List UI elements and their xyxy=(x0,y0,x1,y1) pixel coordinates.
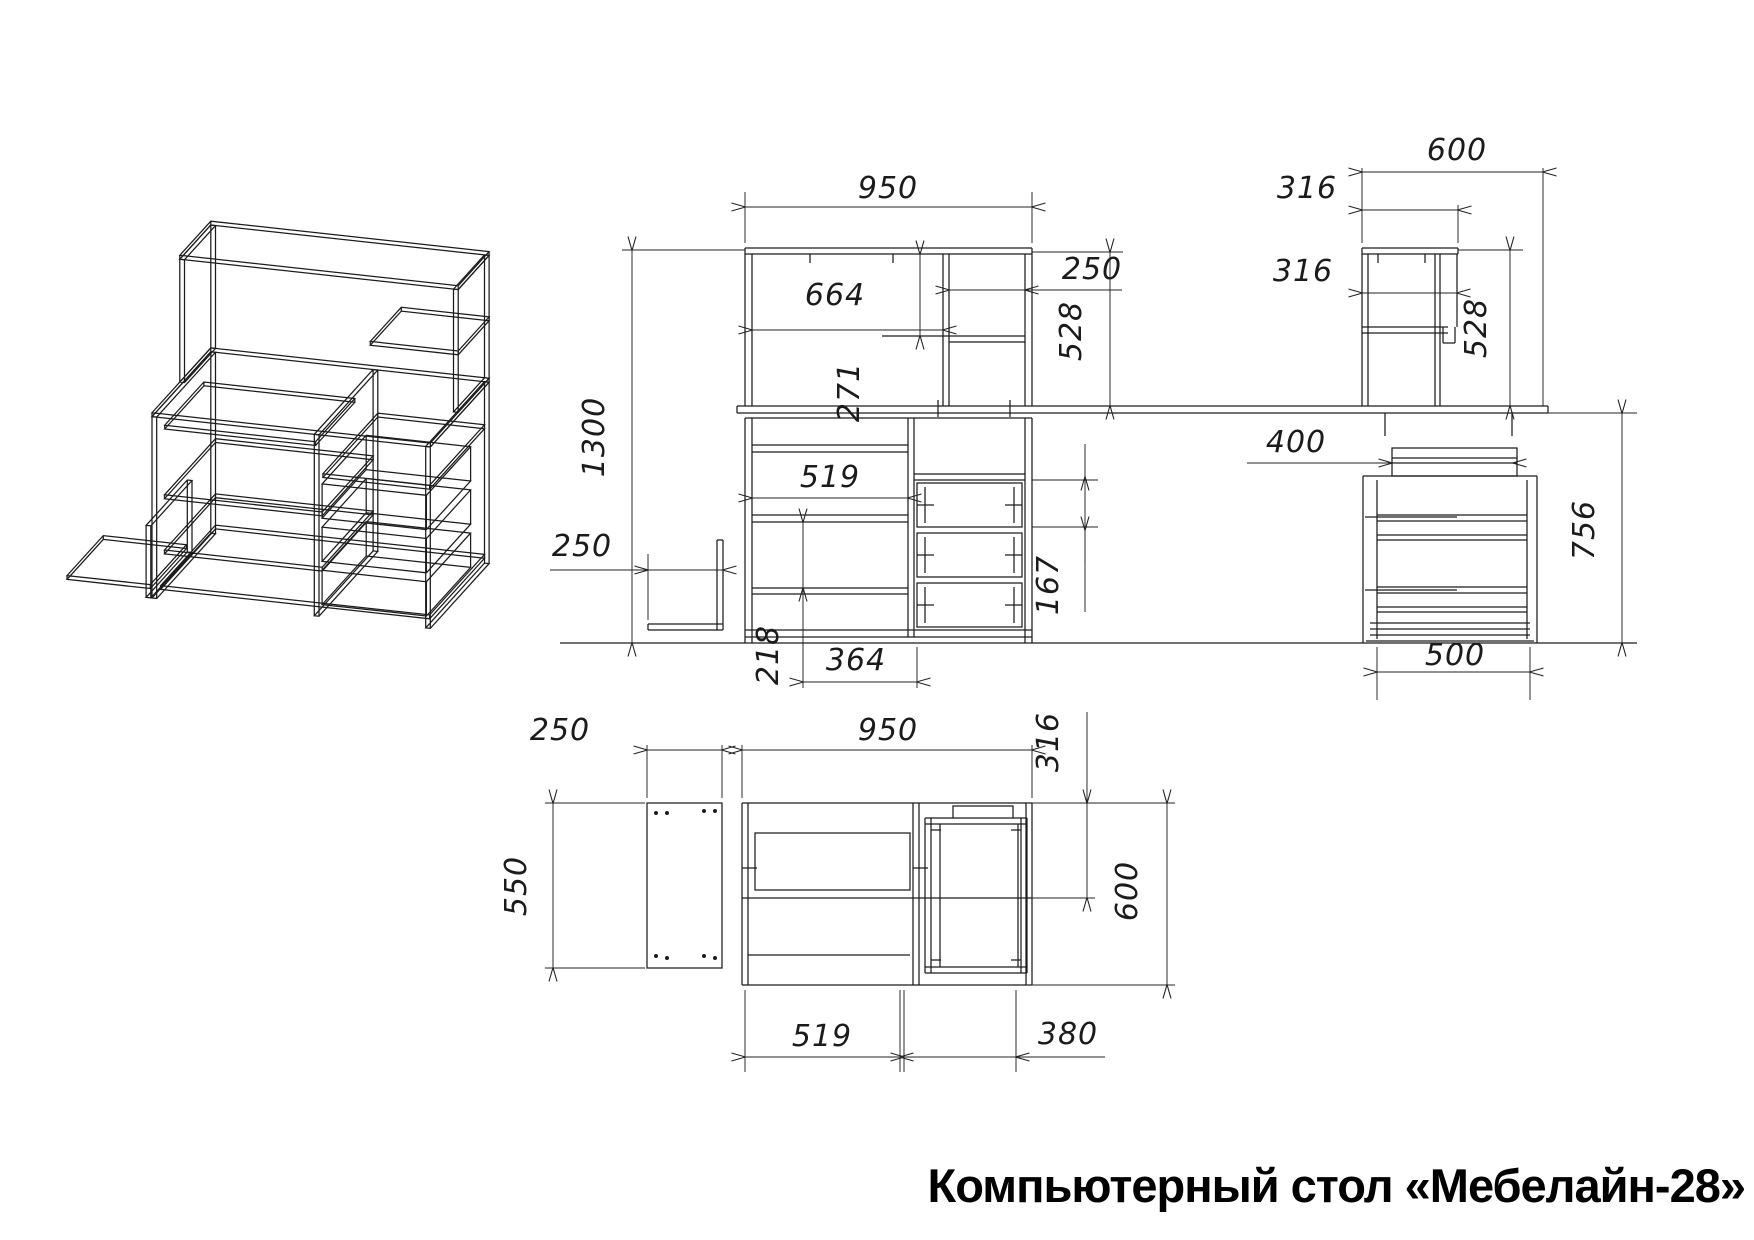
dim-plan-desk-depth: 600 xyxy=(1110,861,1145,921)
dim-plan-tray-width: 519 xyxy=(792,1019,852,1054)
dim-front-hutch-height: 528 xyxy=(1054,301,1089,361)
side-view-dimensions: 600 316 316 528 400 756 500 xyxy=(1247,133,1637,700)
isometric-view xyxy=(67,221,489,628)
dim-front-hutch-niche: 250 xyxy=(1062,252,1122,287)
side-shelf xyxy=(648,540,723,630)
dim-side-pedestal-height: 756 xyxy=(1567,500,1602,560)
plan-view-dimensions: 250 550 950 316 600 519 380 xyxy=(499,712,1175,1072)
dim-plan-panel-width: 250 xyxy=(530,713,590,748)
iso-box xyxy=(323,413,485,489)
drawing-sheet: 950 1300 664 250 528 271 250 519 218 364… xyxy=(0,0,1754,1240)
iso-box xyxy=(165,439,374,516)
dim-front-shelf-drop: 271 xyxy=(832,362,867,422)
side-view xyxy=(1362,248,1537,643)
plan-view xyxy=(647,803,1032,985)
drawer-fronts xyxy=(917,483,1022,627)
dim-front-desk-niche: 519 xyxy=(800,460,860,495)
dim-side-tray-depth: 400 xyxy=(1266,425,1326,460)
dim-plan-panel-depth: 550 xyxy=(499,856,534,916)
iso-box xyxy=(314,370,378,617)
dim-front-hutch-opening: 664 xyxy=(805,278,865,313)
dim-plan-total-width: 950 xyxy=(858,713,918,748)
drawing-title: Компьютерный стол «Мебелайн-28» xyxy=(928,1159,1745,1212)
dim-plan-pedestal-width: 380 xyxy=(1038,1017,1098,1052)
technical-drawing: 950 1300 664 250 528 271 250 519 218 364… xyxy=(0,0,1754,1240)
iso-box xyxy=(322,479,471,573)
dim-side-hutch-height: 528 xyxy=(1459,298,1494,358)
dim-front-lower-niche-height: 218 xyxy=(751,625,786,685)
dim-front-bottom-span: 364 xyxy=(826,643,886,678)
dim-front-side-shelf: 250 xyxy=(552,529,612,564)
iso-box xyxy=(180,221,489,289)
dim-front-total-height: 1300 xyxy=(577,397,612,477)
iso-box xyxy=(370,307,489,355)
dim-side-depth: 600 xyxy=(1427,133,1487,168)
dim-plan-hutch-depth: 316 xyxy=(1031,712,1066,772)
dim-side-mid-shelf-depth: 316 xyxy=(1273,254,1333,289)
iso-box xyxy=(322,522,471,616)
dim-side-drawer-depth: 500 xyxy=(1425,638,1485,673)
dim-side-top-shelf-depth: 316 xyxy=(1277,171,1337,206)
drawer-box-plan xyxy=(925,806,1027,973)
dim-front-total-width: 950 xyxy=(858,171,918,206)
dim-front-drawer-pitch: 167 xyxy=(1031,555,1066,615)
